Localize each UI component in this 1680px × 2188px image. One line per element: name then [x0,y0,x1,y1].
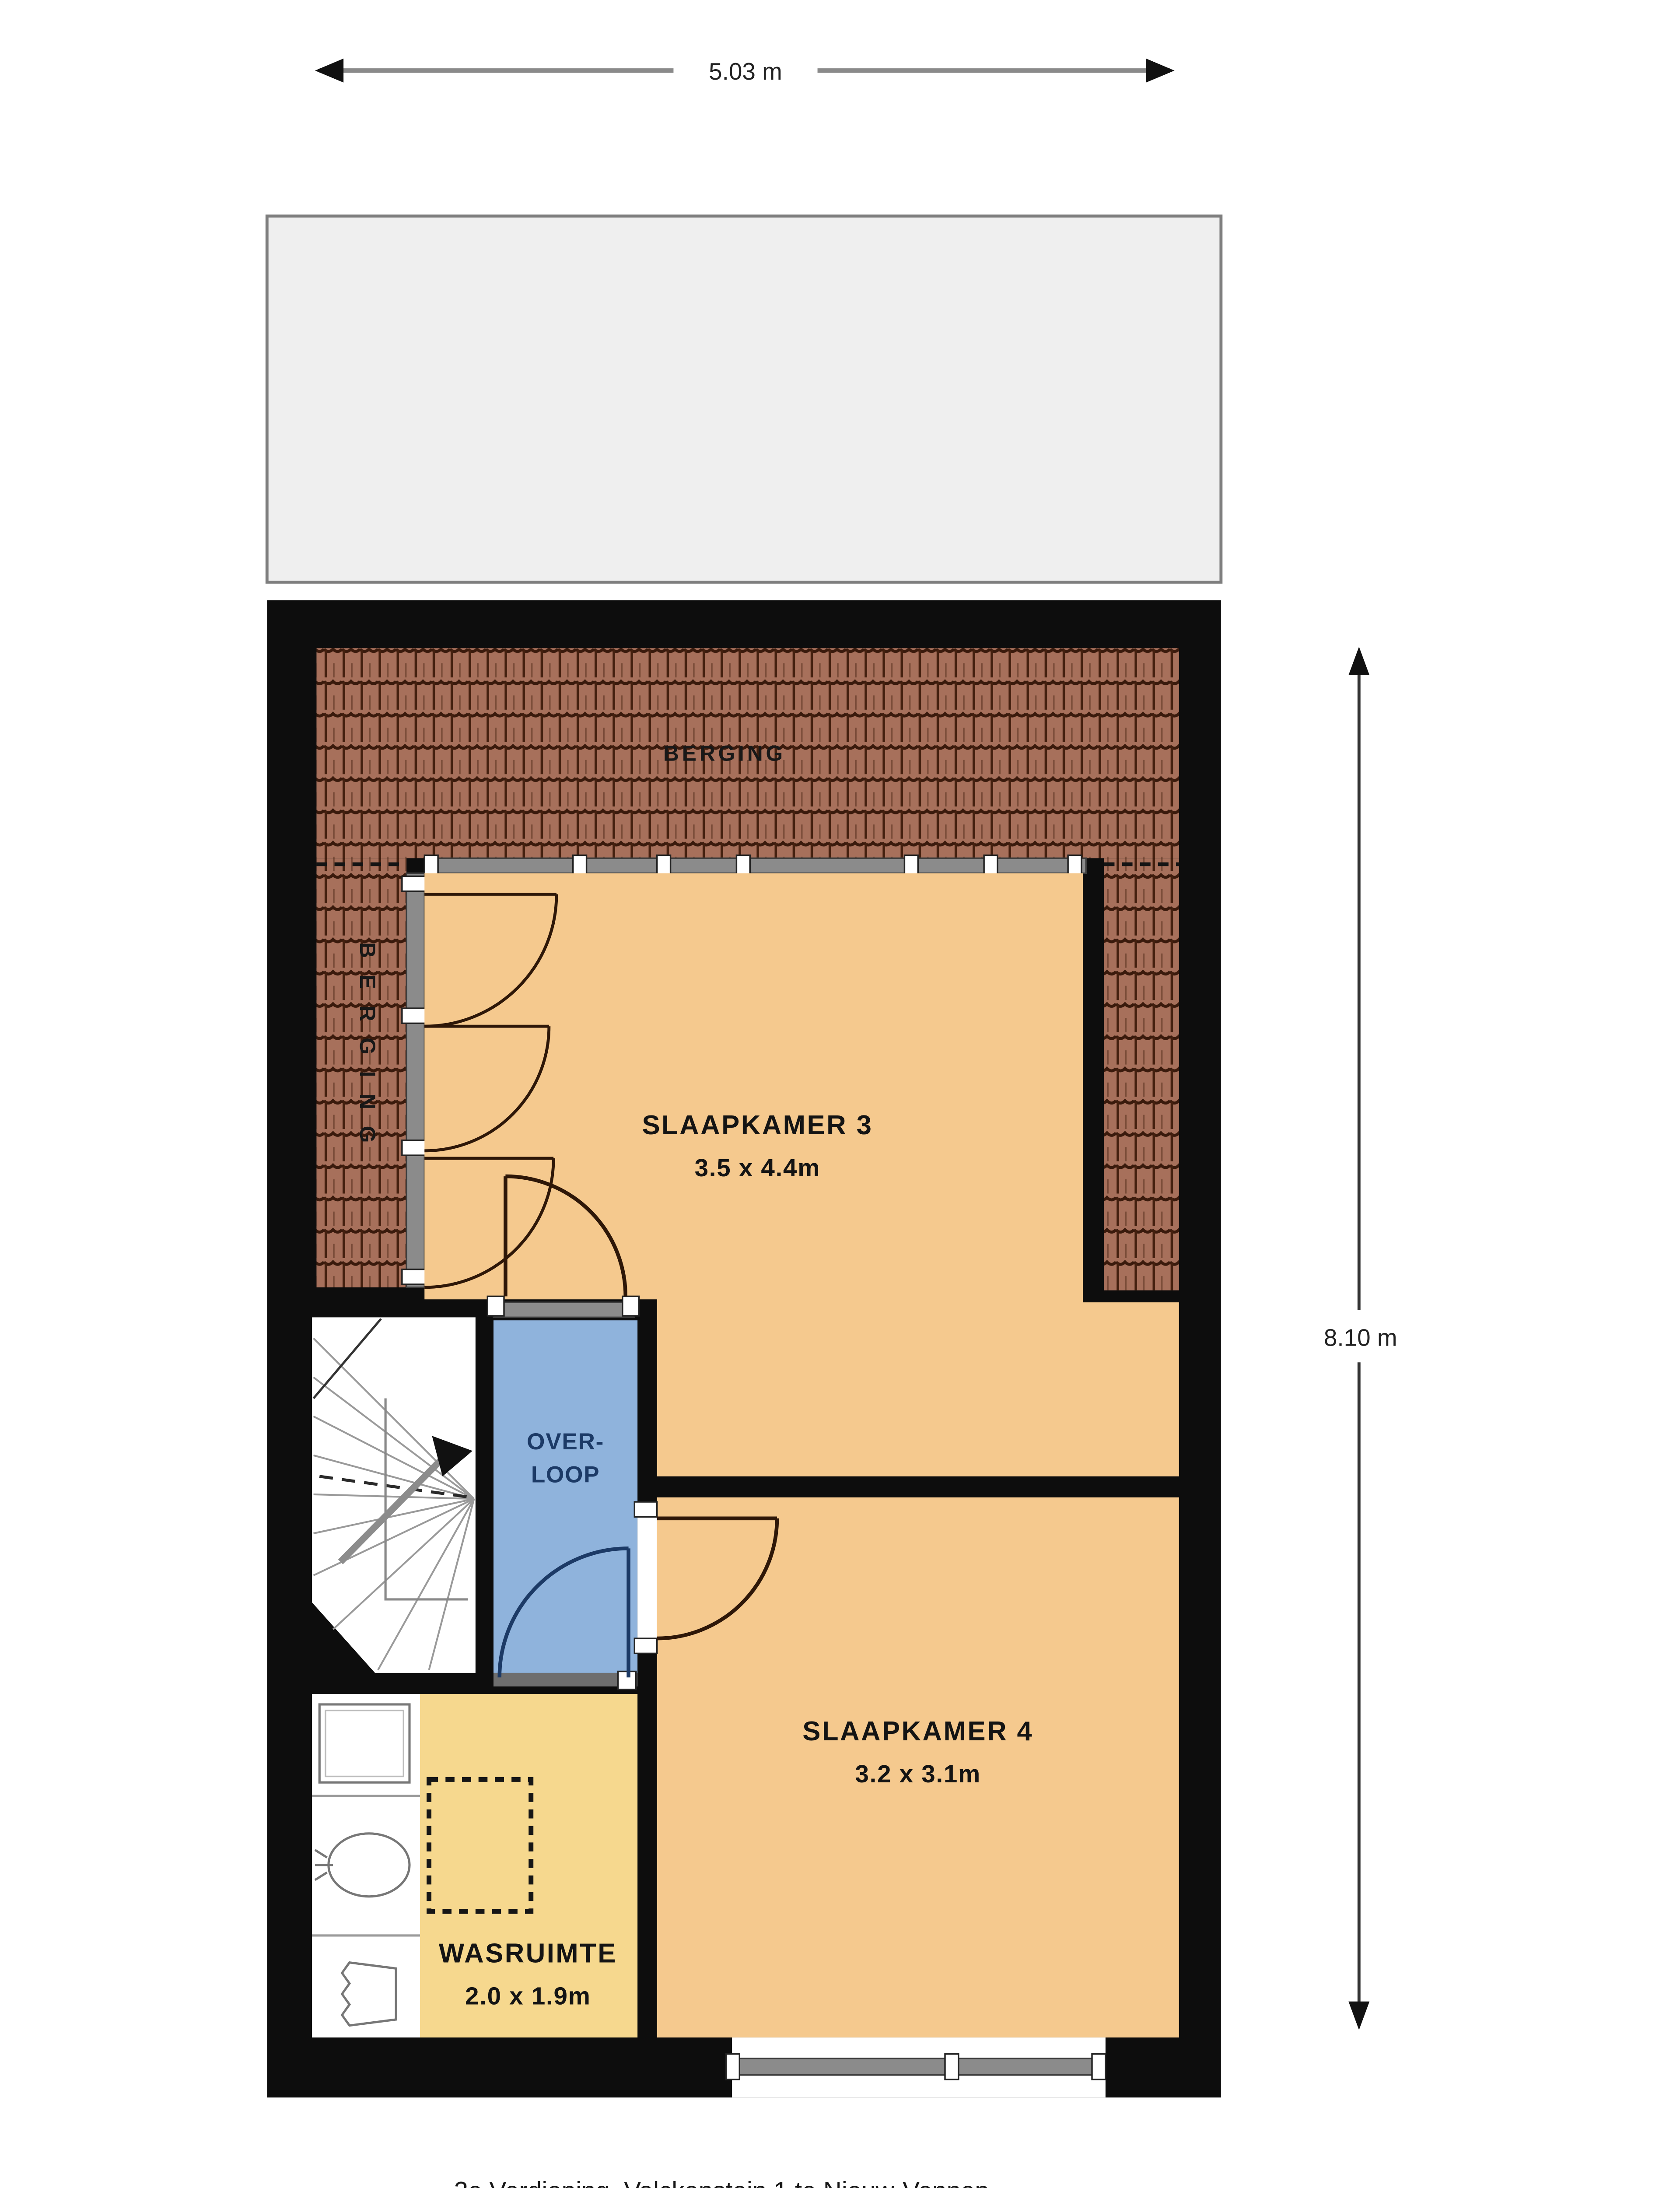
left-arrowhead-icon [315,59,343,83]
height-dimension: 8.10 m [1324,647,1397,2030]
height-dimension-label: 8.10 m [1324,1324,1397,1351]
overloop-label-line1: OVER- [527,1429,604,1455]
roof-terrace-area [267,216,1221,582]
berging-top-label: BERGING [663,741,786,765]
floorplan: BERGING BERGING SLAAPKAMER 3 3.5 x 4.4m … [267,600,1221,2098]
top-arrowhead-icon [1348,647,1369,675]
width-dimension: 5.03 m [315,58,1175,85]
slaapkamer3-size: 3.5 x 4.4m [695,1154,821,1182]
footer: 2e Verdieping, Valckenstein 1 te Nieuw-V… [376,2177,1067,2188]
toilet-icon [342,1963,396,2026]
slaapkamer4-size: 3.2 x 3.1m [855,1760,981,1788]
slaapkamer3-label: SLAAPKAMER 3 [642,1110,873,1140]
berging-roof-right-strip [1104,858,1179,1290]
footer-address: 2e Verdieping, Valckenstein 1 te Nieuw-V… [454,2177,989,2188]
counter-icon [319,1704,409,1782]
overloop-label-line2: LOOP [531,1462,600,1488]
floorplan-canvas: 5.03 m [0,0,1680,2188]
bottom-arrowhead-icon [1348,2002,1369,2030]
wasruimte-size: 2.0 x 1.9m [465,1982,591,2010]
berging-left-label: BERGING [355,942,380,1159]
slaapkamer4-label: SLAAPKAMER 4 [802,1716,1033,1746]
right-arrowhead-icon [1146,59,1174,83]
width-dimension-label: 5.03 m [709,58,782,85]
staircase [312,1317,476,1673]
overloop-floor [493,1320,637,1673]
wasruimte-label: WASRUIMTE [439,1939,617,1969]
window-band-bottom [726,2037,1105,2097]
window-band-top [424,855,1086,876]
